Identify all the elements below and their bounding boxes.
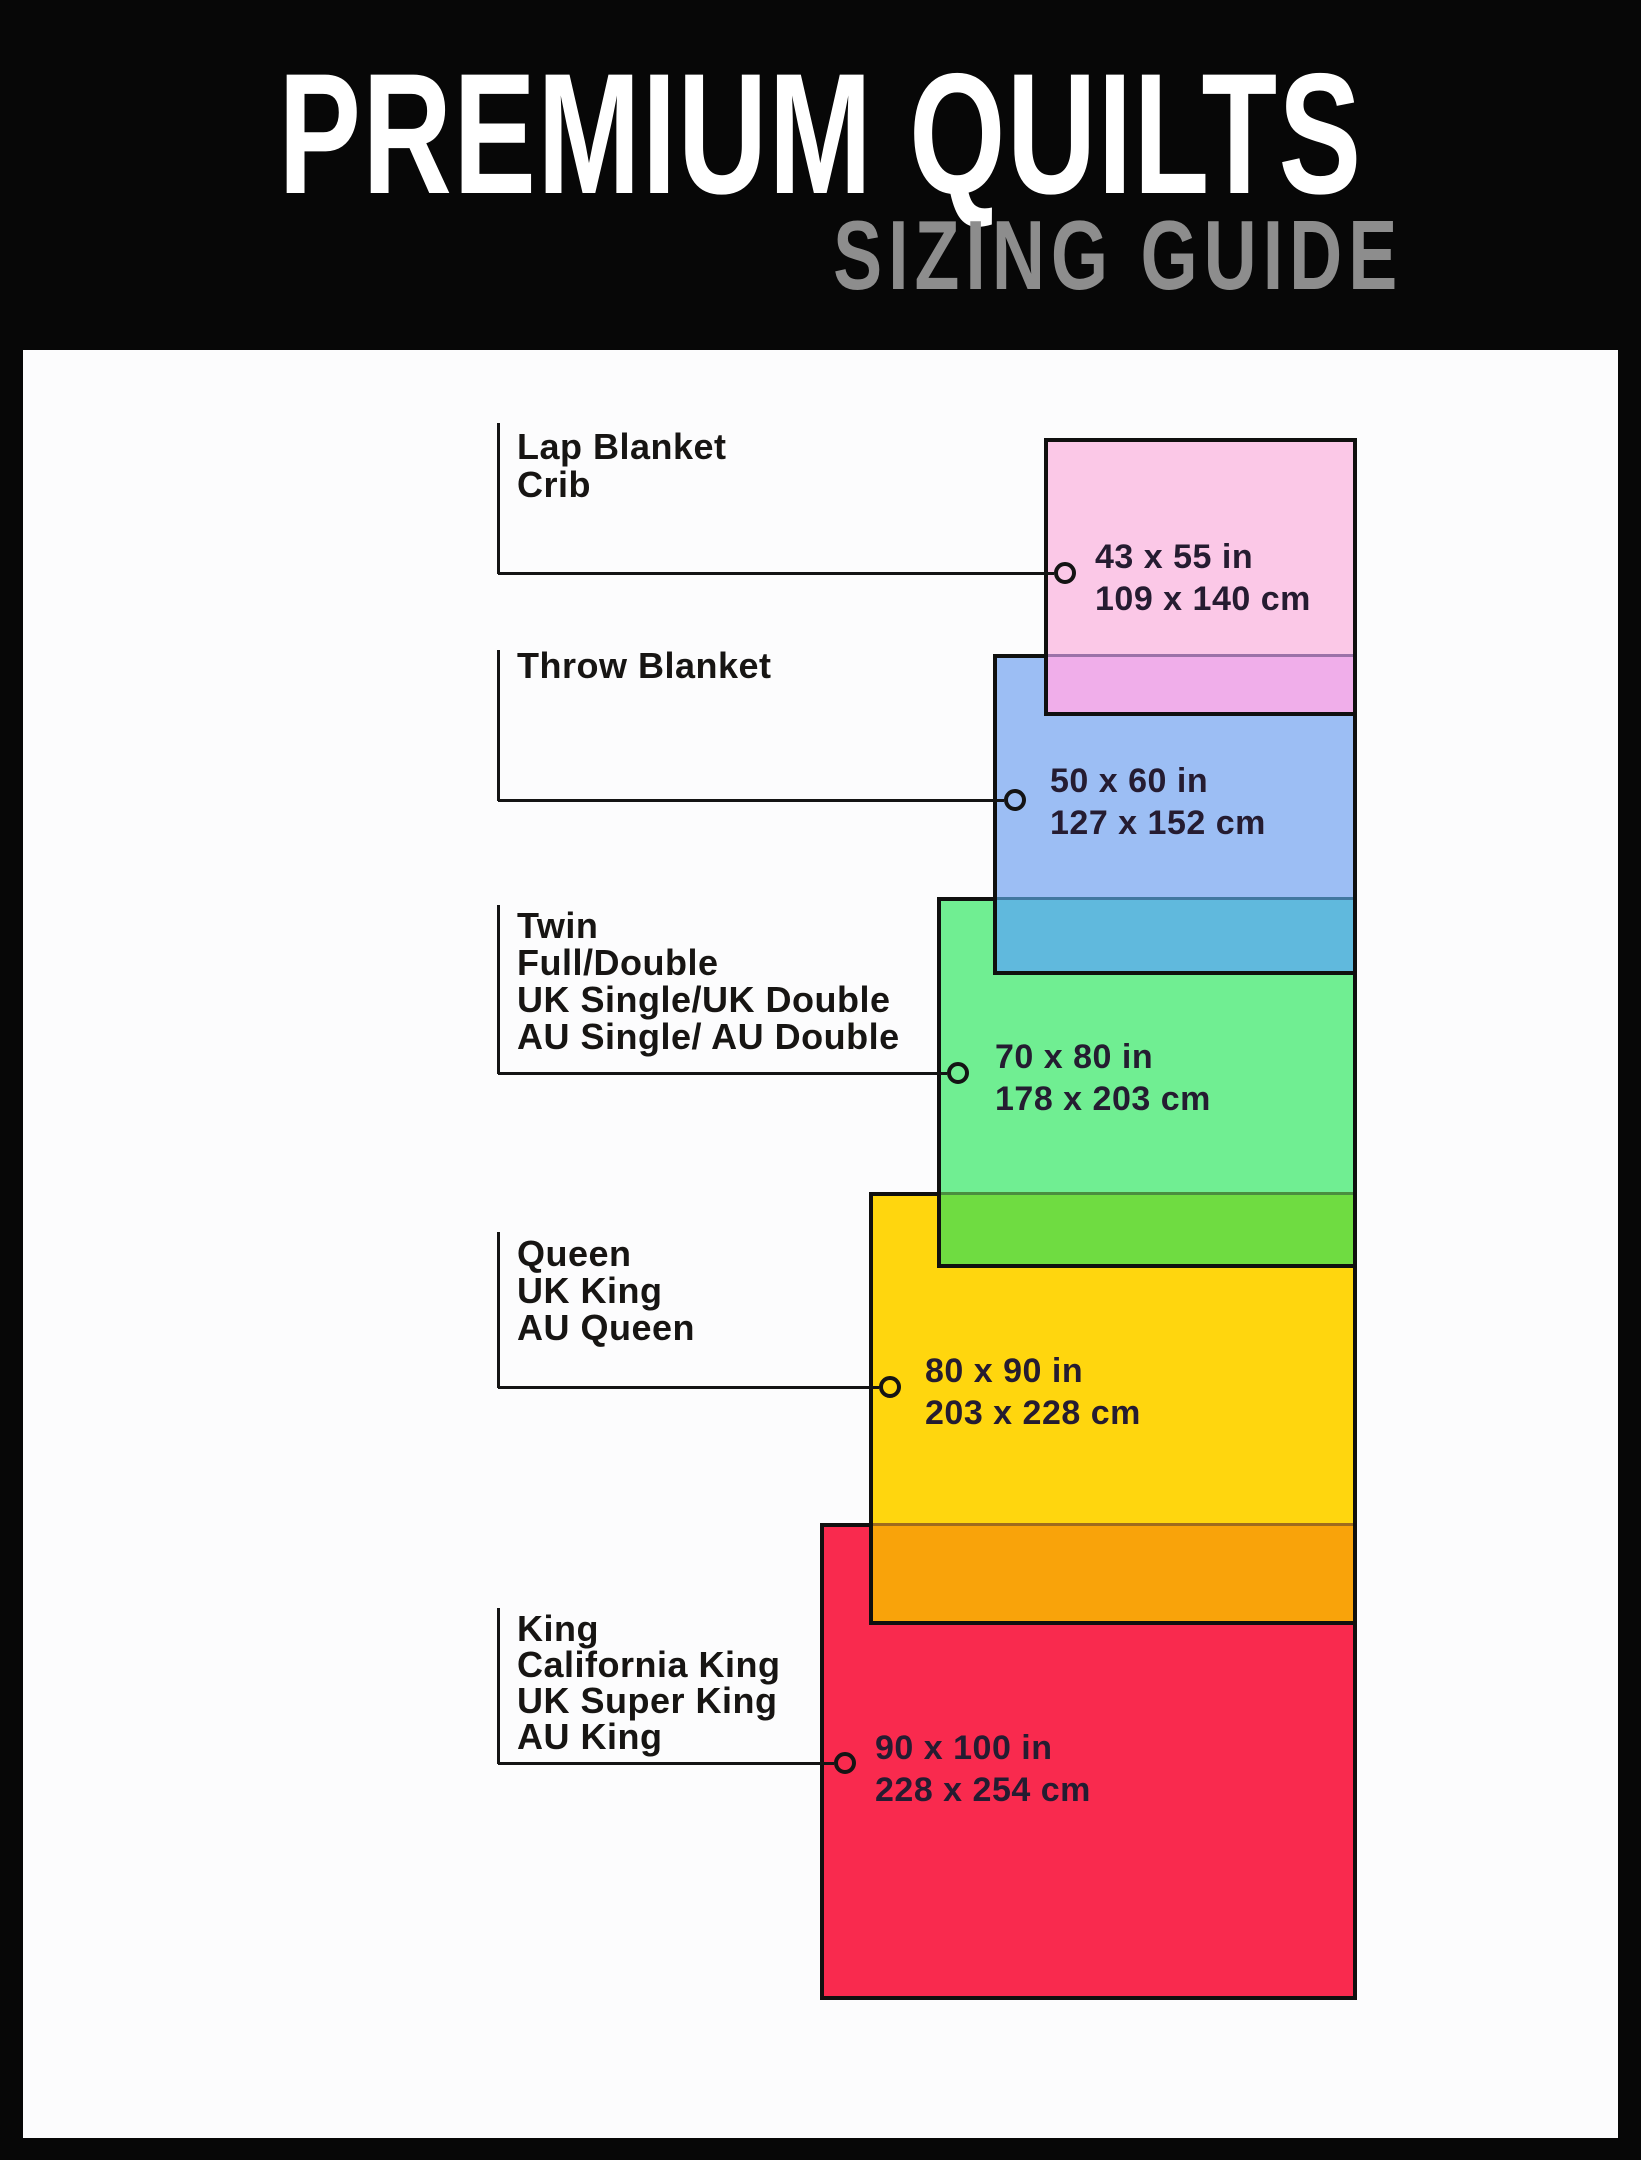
connector-vline-king bbox=[497, 1608, 500, 1764]
page-subtitle: SIZING GUIDE bbox=[833, 206, 1403, 304]
overlap-twin-over-queen bbox=[941, 1192, 1353, 1264]
dimensions-throw-blanket: 50 x 60 in 127 x 152 cm bbox=[1050, 760, 1266, 844]
label-line: AU Single/ AU Double bbox=[517, 1018, 900, 1055]
dimension-cm: 203 x 228 cm bbox=[925, 1392, 1141, 1434]
label-line: AU Queen bbox=[517, 1309, 695, 1346]
leader-dot-twin bbox=[947, 1062, 969, 1084]
overlap-lap-over-throw bbox=[1048, 654, 1353, 712]
leader-dot-lap-blanket bbox=[1054, 562, 1076, 584]
connector-hline-queen bbox=[498, 1386, 879, 1389]
dimension-inches: 70 x 80 in bbox=[995, 1036, 1211, 1078]
dimensions-king: 90 x 100 in 228 x 254 cm bbox=[875, 1727, 1091, 1811]
label-line: Full/Double bbox=[517, 944, 900, 981]
dimension-cm: 109 x 140 cm bbox=[1095, 578, 1311, 620]
size-label-queen: Queen UK King AU Queen bbox=[517, 1235, 695, 1346]
label-line: California King bbox=[517, 1647, 781, 1683]
connector-vline-queen bbox=[497, 1232, 500, 1388]
sizing-guide-page: PREMIUM QUILTS SIZING GUIDE Lap Blanket … bbox=[0, 0, 1641, 2160]
connector-hline-throw-blanket bbox=[498, 799, 1004, 802]
dimension-cm: 228 x 254 cm bbox=[875, 1769, 1091, 1811]
dimension-inches: 50 x 60 in bbox=[1050, 760, 1266, 802]
dimension-cm: 178 x 203 cm bbox=[995, 1078, 1211, 1120]
connector-vline-twin bbox=[497, 905, 500, 1074]
connector-hline-king bbox=[498, 1762, 834, 1765]
dimension-inches: 90 x 100 in bbox=[875, 1727, 1091, 1769]
dimension-cm: 127 x 152 cm bbox=[1050, 802, 1266, 844]
dimensions-lap-blanket: 43 x 55 in 109 x 140 cm bbox=[1095, 536, 1311, 620]
label-line: Crib bbox=[517, 466, 727, 504]
connector-vline-lap-blanket bbox=[497, 423, 500, 574]
label-line: UK Single/UK Double bbox=[517, 981, 900, 1018]
size-label-king: King California King UK Super King AU Ki… bbox=[517, 1611, 781, 1755]
size-label-throw-blanket: Throw Blanket bbox=[517, 647, 772, 684]
label-line: Queen bbox=[517, 1235, 695, 1272]
label-line: King bbox=[517, 1611, 781, 1647]
label-line: UK King bbox=[517, 1272, 695, 1309]
label-line: Twin bbox=[517, 907, 900, 944]
leader-dot-queen bbox=[879, 1376, 901, 1398]
connector-vline-throw-blanket bbox=[497, 650, 500, 801]
label-line: Throw Blanket bbox=[517, 647, 772, 684]
size-label-lap-blanket: Lap Blanket Crib bbox=[517, 428, 727, 504]
label-line: UK Super King bbox=[517, 1683, 781, 1719]
dimensions-twin: 70 x 80 in 178 x 203 cm bbox=[995, 1036, 1211, 1120]
leader-dot-throw-blanket bbox=[1004, 789, 1026, 811]
page-title: PREMIUM QUILTS bbox=[230, 48, 1412, 220]
dimensions-queen: 80 x 90 in 203 x 228 cm bbox=[925, 1350, 1141, 1434]
connector-hline-lap-blanket bbox=[498, 572, 1054, 575]
overlap-throw-over-twin bbox=[997, 897, 1353, 971]
dimension-inches: 80 x 90 in bbox=[925, 1350, 1141, 1392]
leader-dot-king bbox=[834, 1752, 856, 1774]
size-label-twin: Twin Full/Double UK Single/UK Double AU … bbox=[517, 907, 900, 1055]
label-line: Lap Blanket bbox=[517, 428, 727, 466]
label-line: AU King bbox=[517, 1719, 781, 1755]
dimension-inches: 43 x 55 in bbox=[1095, 536, 1311, 578]
overlap-queen-over-king bbox=[873, 1523, 1353, 1621]
connector-hline-twin bbox=[498, 1072, 947, 1075]
